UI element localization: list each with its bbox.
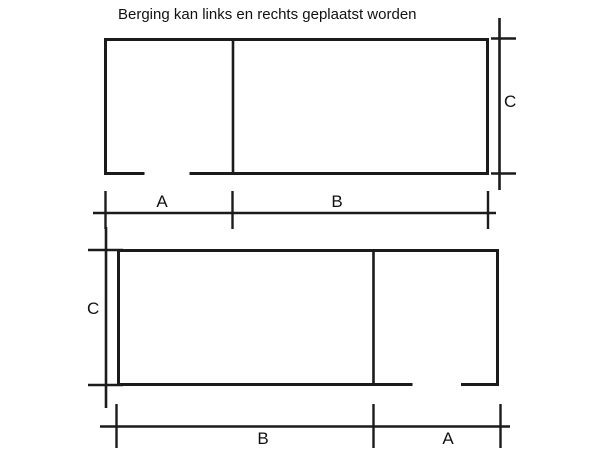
diagram-title: Berging kan links en rechts geplaatst wo… — [118, 6, 417, 23]
bottom-plan-section-b-label: B — [257, 429, 268, 448]
diagram-canvas: Berging kan links en rechts geplaatst wo… — [0, 0, 600, 450]
top-plan-outline — [106, 40, 488, 174]
bottom-plan-height-label: C — [87, 299, 99, 318]
floorplan-diagram: Berging kan links en rechts geplaatst wo… — [0, 0, 600, 450]
bottom-plan-section-a-label: A — [442, 429, 454, 448]
top-plan-section-a-label: A — [156, 192, 168, 211]
bottom-plan-outline — [119, 251, 498, 385]
top-plan-height-label: C — [504, 92, 516, 111]
top-plan-section-b-label: B — [331, 192, 342, 211]
